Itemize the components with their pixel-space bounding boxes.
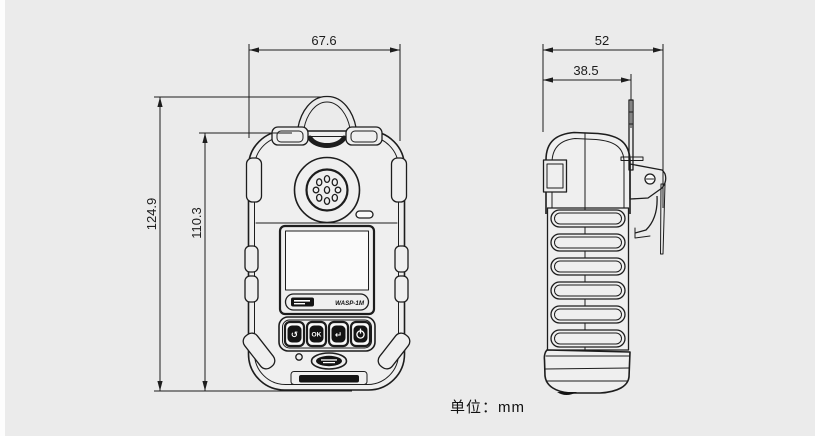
back-button[interactable]: ↵: [329, 322, 348, 346]
dimension-body-depth: 38.5: [543, 63, 631, 128]
led-indicator: [356, 211, 373, 218]
dim-label-body-height: 110.3: [189, 207, 204, 239]
dimension-drawing-page: WASP-1M ↺ OK ↵: [0, 0, 815, 436]
top-lug-left: [272, 127, 308, 145]
top-lug-right: [346, 127, 382, 145]
mode-icon: ↺: [291, 331, 298, 341]
speaker: [295, 158, 360, 223]
ok-label: OK: [312, 332, 322, 339]
dim-label-body-depth: 38.5: [573, 63, 598, 78]
side-front-pad: [544, 160, 567, 192]
screen: WASP-1M: [280, 226, 374, 314]
side-view: [544, 100, 666, 395]
power-button[interactable]: [351, 322, 370, 346]
brand-logo: [291, 298, 314, 307]
ok-button[interactable]: OK: [307, 322, 326, 346]
back-icon: ↵: [335, 331, 342, 341]
dimension-diagram: WASP-1M ↺ OK ↵: [0, 0, 815, 436]
front-view: WASP-1M ↺ OK ↵: [240, 96, 412, 390]
unit-note: 单位：mm: [450, 399, 525, 416]
dim-label-total-height: 124.9: [144, 198, 159, 231]
model-label: WASP-1M: [335, 300, 365, 307]
dim-label-total-depth: 52: [595, 33, 609, 48]
display: [286, 231, 369, 290]
mode-button[interactable]: ↺: [285, 322, 304, 346]
dimension-front-width: 67.6: [249, 33, 400, 141]
bottom-cap: [544, 350, 630, 395]
belt-clip: [630, 164, 666, 254]
dim-label-front-width: 67.6: [311, 33, 336, 48]
